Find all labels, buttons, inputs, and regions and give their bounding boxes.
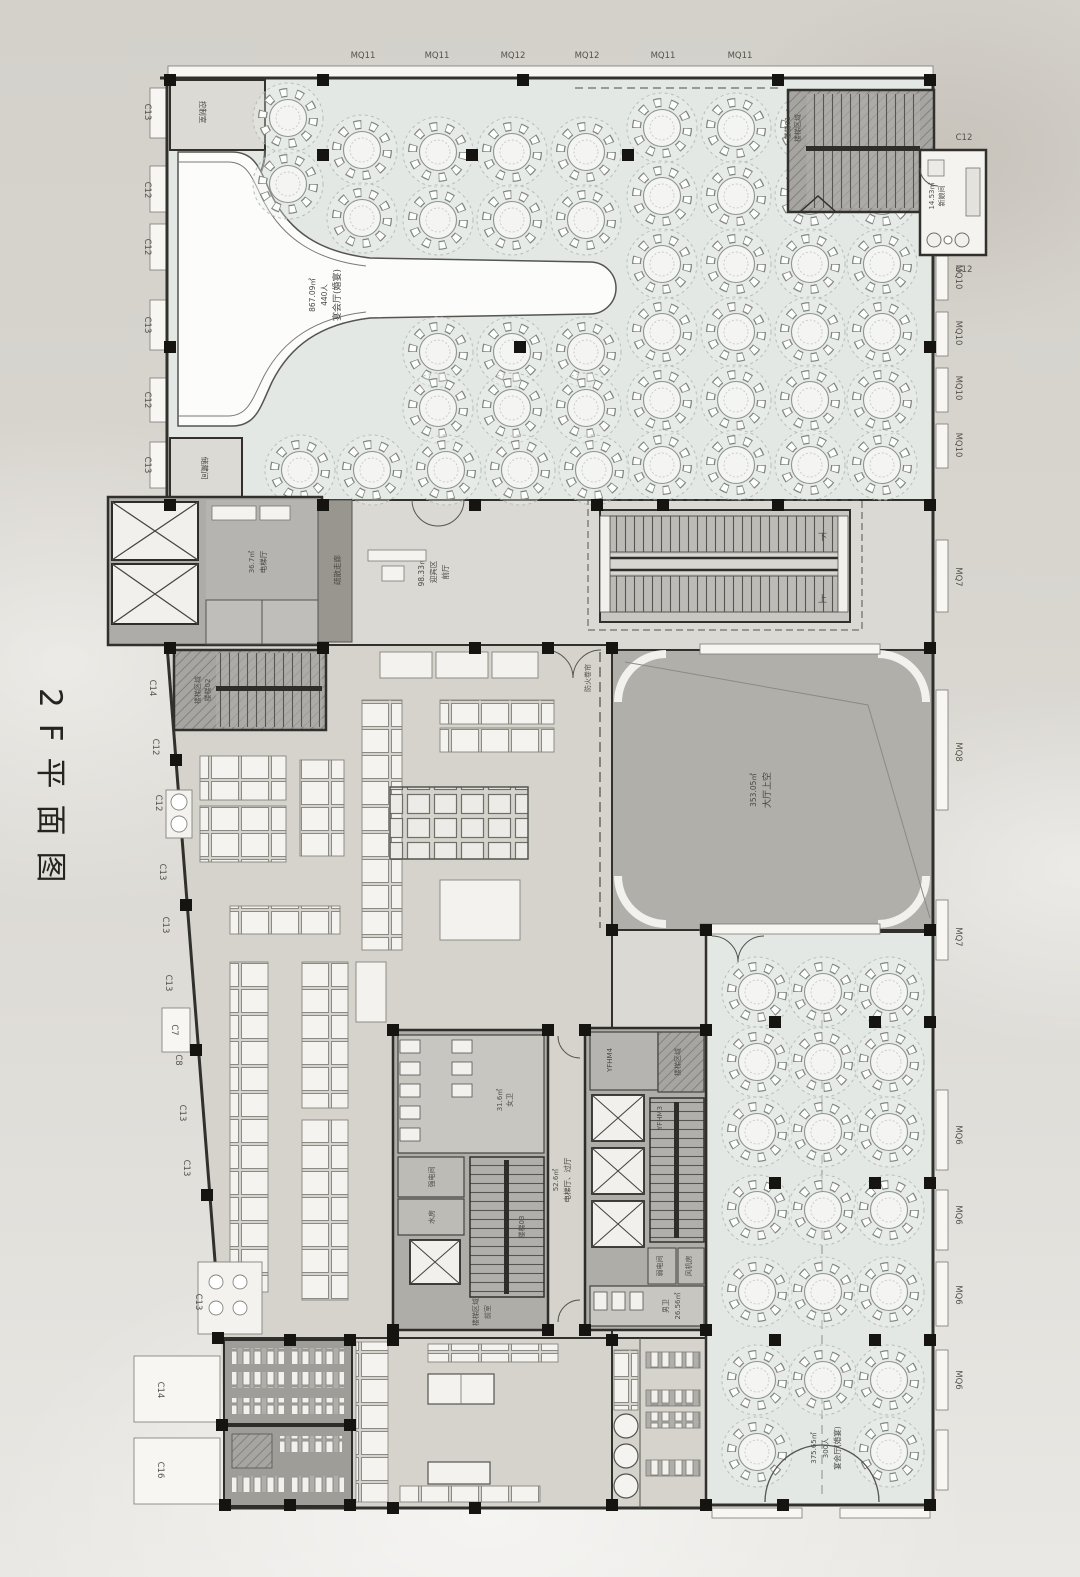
banquet-table	[627, 161, 697, 231]
control-room-label: 控制室	[198, 101, 208, 124]
bride-room: 新娘间 14.53㎡	[920, 150, 986, 255]
yfhm4-label: YFHM4	[606, 1047, 614, 1073]
banquet-table	[627, 229, 697, 299]
banquet-table	[477, 373, 547, 443]
banquet-table	[327, 183, 397, 253]
water-room-label: 水房	[427, 1210, 436, 1224]
south-hall-area: 375.65㎡	[810, 1432, 818, 1464]
mens-name: 男卫	[662, 1299, 670, 1313]
facade-label: C13	[193, 1294, 203, 1311]
banquet-table	[854, 1097, 924, 1167]
facade-label: C12	[150, 739, 160, 756]
facade-label: C13	[181, 1160, 191, 1177]
banquet-table	[627, 430, 697, 500]
yfhm3-label: YFHM3	[656, 1106, 664, 1131]
facade-label: C13	[177, 1105, 187, 1122]
facade-label: MQ10	[953, 265, 963, 290]
left-elevator-core: 电梯厅 36.7㎡	[108, 497, 352, 645]
stair-zone-left-label: 楼梯区域	[471, 1298, 480, 1326]
banquet-table	[701, 93, 771, 163]
facade-label: MQ10	[953, 433, 963, 458]
facade-label: MQ8	[953, 742, 963, 761]
facade-label: C12	[153, 795, 163, 812]
left-core: 女卫 31.6㎡ 强电间 水房 楼梯03 楼梯区域 前室	[393, 1030, 548, 1330]
banquet-table	[847, 430, 917, 500]
banquet-table	[775, 297, 845, 367]
void-area: 353.05㎡	[749, 773, 758, 807]
banquet-table	[854, 1027, 924, 1097]
foyer-area: 98.33㎡	[417, 557, 426, 586]
banquet-table	[627, 365, 697, 435]
banquet-table	[722, 1027, 792, 1097]
banquet-table	[854, 1175, 924, 1245]
facade-label: MQ6	[953, 1285, 963, 1304]
right-core: YFHM4 楼梯区域 YFHM3 弱电间 风机房 男卫 26.56㎡	[585, 1028, 706, 1330]
facade-label: C14	[147, 680, 157, 697]
stair03-label: 楼梯03	[517, 1216, 526, 1239]
banquet-table	[551, 117, 621, 187]
facade-label: MQ6	[953, 1125, 963, 1144]
banquet-table	[854, 1257, 924, 1327]
elev-lobby-area: 52.6㎡	[552, 1169, 560, 1192]
bride-area: 14.53㎡	[928, 182, 936, 209]
facade-label: MQ7	[953, 927, 963, 946]
banquet-table	[403, 373, 473, 443]
corridor-label: 疏散走廊	[332, 555, 342, 585]
banquet-table	[788, 1097, 858, 1167]
banquet-table	[551, 373, 621, 443]
stair-01: 楼梯区域 楼梯01	[783, 90, 934, 212]
facade-label: C12	[142, 182, 152, 199]
bride-name: 新娘间	[937, 186, 946, 207]
banquet-table	[403, 117, 473, 187]
banquet-table	[775, 365, 845, 435]
facade-label: MQ11	[351, 51, 376, 61]
banquet-table	[788, 1257, 858, 1327]
stair-zone-right-label: 楼梯区域	[673, 1048, 682, 1076]
banquet-table	[788, 1027, 858, 1097]
facade-label: C14	[155, 1382, 165, 1399]
banquet-table	[847, 297, 917, 367]
banquet-table	[788, 1175, 858, 1245]
banquet-table	[701, 430, 771, 500]
facade-label: C13	[142, 317, 152, 334]
banquet-table	[722, 1417, 792, 1487]
escalator-up: 上	[818, 594, 827, 605]
banquet-table	[559, 435, 629, 505]
banquet-table	[485, 435, 555, 505]
banquet-table	[722, 1257, 792, 1327]
void-name: 大厅上空	[761, 772, 773, 808]
banquet-table	[775, 229, 845, 299]
banquet-table	[722, 957, 792, 1027]
storage-room: 储藏间	[170, 438, 242, 498]
hall-capacity: 440人	[320, 284, 329, 306]
escalator-down: 下	[818, 533, 827, 543]
facade-label: C13	[142, 104, 152, 121]
stair-02: 楼梯区域 楼梯02	[174, 650, 326, 730]
banquet-table	[788, 957, 858, 1027]
elev-lobby-name: 电梯厅、过厅	[562, 1157, 572, 1202]
banquet-table	[847, 229, 917, 299]
facade-label: C13	[163, 975, 173, 992]
facade-label: MQ12	[575, 51, 600, 61]
south-hall-capacity: 300人	[822, 1438, 830, 1458]
escalator: 下 上	[588, 500, 862, 630]
banquet-table	[722, 1345, 792, 1415]
facade-label: MQ7	[953, 567, 963, 586]
stair01-zone: 楼梯区域	[793, 114, 802, 142]
banquet-table	[788, 1345, 858, 1415]
facade-label: MQ6	[953, 1370, 963, 1389]
facade-label: C8	[173, 1054, 183, 1065]
facade-label: C7	[169, 1024, 179, 1035]
banquet-table	[701, 161, 771, 231]
facade-label: MQ11	[728, 51, 753, 61]
facade-label: C13	[157, 864, 167, 881]
banquet-table	[403, 185, 473, 255]
banquet-table	[854, 957, 924, 1027]
banquet-table	[265, 435, 335, 505]
banquet-table	[253, 83, 323, 153]
elev-hall-name: 电梯厅	[258, 550, 268, 573]
hall-area: 867.09㎡	[308, 278, 317, 312]
facade-label: C13	[142, 457, 152, 474]
banquet-table	[722, 1097, 792, 1167]
stair02-name: 楼梯02	[203, 679, 212, 702]
banquet-table	[775, 430, 845, 500]
banquet-table	[337, 435, 407, 505]
foyer-line1: 前厅	[440, 564, 450, 579]
banquet-table	[627, 297, 697, 367]
facade-label: MQ12	[501, 51, 526, 61]
foyer-line2: 迎宾区	[428, 560, 438, 583]
facade-label: C16	[155, 1462, 165, 1479]
stair01-name: 楼梯01	[783, 117, 792, 140]
storage-label: 储藏间	[200, 457, 210, 480]
womens-name: 女卫	[505, 1093, 514, 1107]
weak-electric-label: 弱电间	[655, 1256, 664, 1277]
banquet-table	[701, 297, 771, 367]
elev-hall-area: 36.7㎡	[248, 551, 256, 574]
facade-label: C12	[142, 392, 152, 409]
banquet-table	[551, 185, 621, 255]
banquet-table	[854, 1345, 924, 1415]
fire-shutter-label: 防火卷帘	[583, 664, 592, 692]
banquet-table	[477, 117, 547, 187]
facade-label: C12	[142, 239, 152, 256]
facade-label: MQ10	[953, 321, 963, 346]
facade-label: C12	[956, 133, 973, 143]
south-hall-name: 宴会厅(婚宴)	[832, 1426, 842, 1469]
facade-label: MQ10	[953, 376, 963, 401]
banquet-table	[722, 1175, 792, 1245]
banquet-table	[253, 149, 323, 219]
banquet-table	[411, 435, 481, 505]
stair02-zone: 楼梯区域	[193, 676, 202, 704]
cold-rooms	[224, 1340, 388, 1506]
banquet-table	[847, 365, 917, 435]
facade-label: MQ11	[651, 51, 676, 61]
womens-area: 31.6㎡	[496, 1089, 504, 1112]
banquet-table	[854, 1417, 924, 1487]
fan-room-label: 风机房	[684, 1256, 693, 1277]
banquet-table	[477, 185, 547, 255]
strong-electric-label: 强电间	[427, 1167, 436, 1188]
banquet-table	[627, 93, 697, 163]
facade-label: MQ11	[425, 51, 450, 61]
banquet-table	[701, 229, 771, 299]
banquet-table	[701, 365, 771, 435]
banquet-table	[327, 115, 397, 185]
hall-name: 宴会厅(婚宴)	[331, 269, 343, 321]
facade-label: MQ6	[953, 1205, 963, 1224]
vestibule-label: 前室	[483, 1305, 492, 1319]
facade-label: C13	[160, 917, 170, 934]
mens-area: 26.56㎡	[674, 1292, 682, 1319]
floor-plan: 控制室 储藏间 宴会厅(婚宴) 440人 867.09㎡	[0, 0, 1080, 1577]
